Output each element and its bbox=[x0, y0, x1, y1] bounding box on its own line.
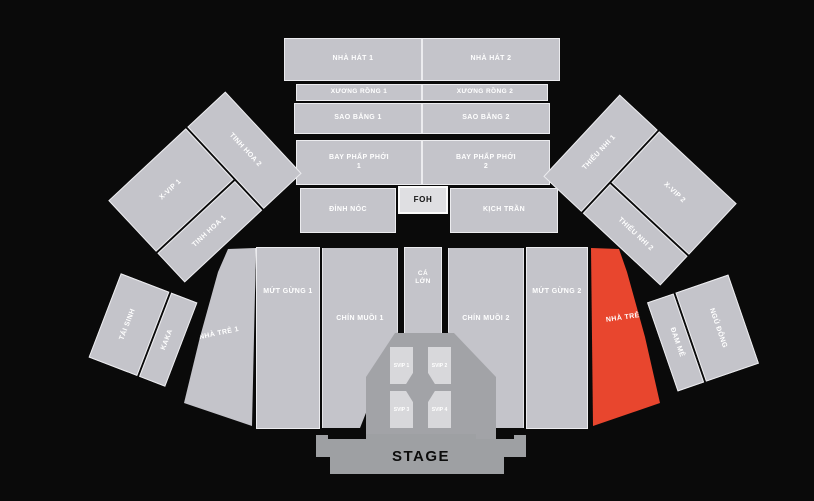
svip-box-1[interactable]: SVIP 1 bbox=[390, 347, 413, 384]
section-xuong-rong-1[interactable]: XƯƠNG RỒNG 1 bbox=[296, 84, 422, 101]
section-sao-bang-2[interactable]: SAO BĂNG 2 bbox=[422, 103, 550, 134]
section-ca-lon-label: CÁ LỚN bbox=[413, 270, 433, 286]
section-ca-lon[interactable]: CÁ LỚN bbox=[404, 247, 442, 344]
section-kich-tran[interactable]: KỊCH TRẦN bbox=[450, 188, 558, 233]
svip-box-4[interactable]: SVIP 4 bbox=[428, 391, 451, 428]
section-nha-hat-2-label: NHÀ HÁT 2 bbox=[471, 55, 512, 64]
section-dam-me-label: ĐAM MÊ bbox=[666, 326, 684, 358]
section-sao-bang-2-label: SAO BĂNG 2 bbox=[462, 114, 510, 123]
section-xuong-rong-2[interactable]: XƯƠNG RỒNG 2 bbox=[422, 84, 548, 101]
section-dinh-noc[interactable]: ĐỈNH NÓC bbox=[300, 188, 396, 233]
svip-box-2-label: SVIP 2 bbox=[432, 363, 447, 369]
section-nha-tre-2-label: NHÀ TRẺ 2 bbox=[605, 311, 646, 325]
section-chin-muoi-2-label: CHÍN MUỒI 2 bbox=[462, 315, 510, 324]
svip-box-3[interactable]: SVIP 3 bbox=[390, 391, 413, 428]
section-kaka-label: KAKA bbox=[160, 328, 176, 352]
section-tai-sinh-label: TÁI SINH bbox=[119, 308, 139, 342]
section-tinh-hoa-2-label: TINH HOA 2 bbox=[226, 131, 262, 169]
svip-box-2[interactable]: SVIP 2 bbox=[428, 347, 451, 384]
section-chin-muoi-1-label: CHÍN MUỒI 1 bbox=[336, 315, 384, 324]
section-xuong-rong-1-label: XƯƠNG RỒNG 1 bbox=[331, 88, 388, 96]
section-x-vip-2-label: X-VIP 2 bbox=[661, 181, 687, 206]
stage-label: STAGE bbox=[392, 448, 450, 465]
seat-map: NHÀ HÁT 1 NHÀ HÁT 2 XƯƠNG RỒNG 1 XƯƠNG R… bbox=[0, 0, 814, 501]
section-nha-hat-2[interactable]: NHÀ HÁT 2 bbox=[422, 38, 560, 81]
section-sao-bang-1[interactable]: SAO BĂNG 1 bbox=[294, 103, 422, 134]
section-bay-phap-phoi-2-label: BAY PHẤP PHỚI 2 bbox=[455, 154, 517, 172]
section-mut-gung-2[interactable]: MỨT GỪNG 2 bbox=[526, 247, 588, 429]
svip-box-4-label: SVIP 4 bbox=[432, 407, 447, 413]
section-mut-gung-1-label: MỨT GỪNG 1 bbox=[263, 288, 312, 297]
stage: STAGE bbox=[316, 434, 526, 474]
section-thieu-nhi-1-label: THIẾU NHI 1 bbox=[582, 134, 619, 173]
section-mut-gung-2-label: MỨT GỪNG 2 bbox=[532, 288, 581, 297]
svip-box-3-label: SVIP 3 bbox=[394, 407, 409, 413]
section-nha-tre-1-label: NHÀ TRẺ 1 bbox=[198, 326, 239, 343]
section-tinh-hoa-1-label: TINH HOA 1 bbox=[191, 214, 229, 250]
section-bay-phap-phoi-1-label: BAY PHẤP PHỚI 1 bbox=[328, 154, 390, 172]
section-ngu-dong-label: NGỦ ĐÔNG bbox=[706, 307, 728, 349]
section-sao-bang-1-label: SAO BĂNG 1 bbox=[334, 114, 382, 123]
foh-booth: FOH bbox=[398, 186, 448, 214]
section-bay-phap-phoi-2[interactable]: BAY PHẤP PHỚI 2 bbox=[422, 140, 550, 185]
section-nha-hat-1[interactable]: NHÀ HÁT 1 bbox=[284, 38, 422, 81]
section-x-vip-1-label: X-VIP 1 bbox=[158, 178, 184, 203]
block-lower-left: TÁI SINH KAKA bbox=[89, 273, 198, 386]
section-dinh-noc-label: ĐỈNH NÓC bbox=[329, 206, 367, 215]
section-xuong-rong-2-label: XƯƠNG RỒNG 2 bbox=[457, 88, 514, 96]
foh-label: FOH bbox=[414, 195, 433, 205]
section-bay-phap-phoi-1[interactable]: BAY PHẤP PHỚI 1 bbox=[296, 140, 422, 185]
section-mut-gung-1[interactable]: MỨT GỪNG 1 bbox=[256, 247, 320, 429]
section-kich-tran-label: KỊCH TRẦN bbox=[483, 206, 525, 215]
block-lower-right: ĐAM MÊ NGỦ ĐÔNG bbox=[647, 275, 759, 392]
section-nha-hat-1-label: NHÀ HÁT 1 bbox=[333, 55, 374, 64]
svip-box-1-label: SVIP 1 bbox=[394, 363, 409, 369]
section-thieu-nhi-2-label: THIẾU NHI 2 bbox=[616, 216, 655, 253]
